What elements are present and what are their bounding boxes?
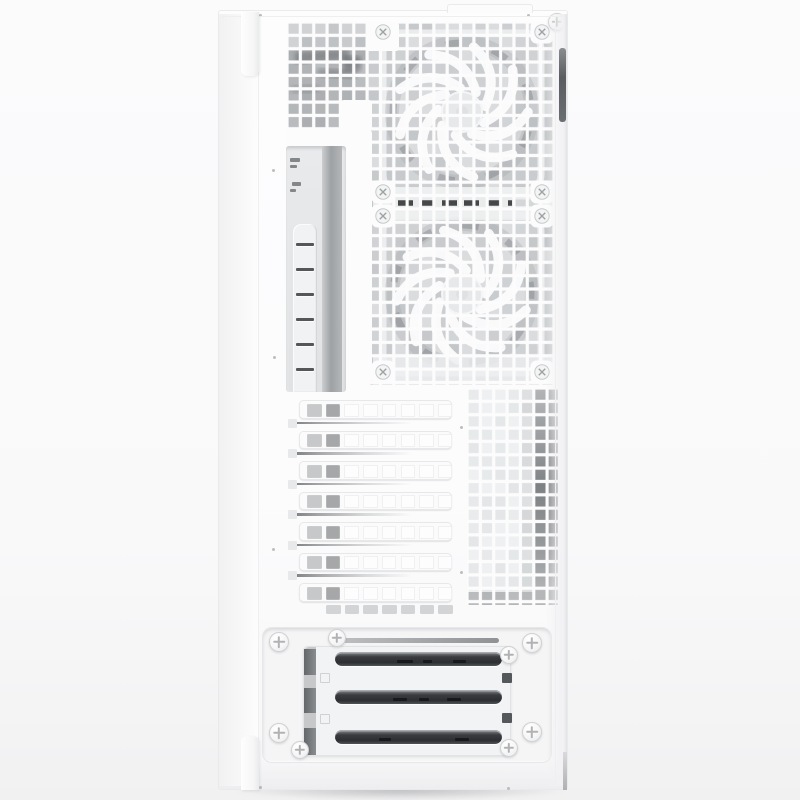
pci-cover-vent-hole [401,556,416,569]
pci-cover-vent-hole [382,587,397,600]
pci-cover-vent-hole [438,404,453,417]
pci-cover-vent-hole [307,556,322,569]
pci-cover-vent-hole [438,556,453,569]
pci-rail-tab [288,419,297,428]
pci-cover-vent-hole [419,526,434,539]
pci-cover-vent-hole [307,434,322,447]
thumbscrew [269,723,289,743]
io-bar-slot [296,243,314,246]
side-vent-svg [467,388,558,605]
rivet-dot [507,787,510,790]
pci-cover-vent-hole [382,434,397,447]
io-vertical-slot-bar [293,224,317,392]
pci-groove [294,544,452,547]
pci-bottom-vent [420,605,435,614]
pci-rail-tab [288,541,297,550]
pci-cover-vent-hole [419,587,434,600]
psu-top-rail-bar [343,638,499,643]
io-bar-slot [296,318,314,321]
pci-cover-vent-hole [307,404,322,417]
psu-slot-connector-mark [447,698,461,701]
thumbscrew [227,74,247,94]
pci-slot-cover [299,522,452,541]
pci-cover-vent-hole [419,465,434,478]
pci-cover-vent-hole [438,526,453,539]
pci-cover-vent-hole [363,434,378,447]
pci-cover-vent-hole [401,465,416,478]
pci-cover-vent-hole [344,404,359,417]
psu-slot-connector-mark [379,738,391,741]
rivet-dot [527,14,530,17]
psu-mount-slot [335,730,502,744]
psu-mount-slot [335,690,502,704]
psu-slot-connector-mark [423,660,432,663]
pci-groove [294,483,452,486]
psu-slot-connector-mark [419,698,429,701]
psu-square-embossing [320,714,330,724]
pci-cover-vent-hole [382,404,397,417]
psu-slot-connector-mark [393,698,407,701]
pci-cover-vent-hole [363,556,378,569]
pci-cover-vent-hole [344,556,359,569]
pci-cover-vent-hole [363,465,378,478]
psu-square-embossing [320,673,330,683]
thumbscrew [522,722,542,742]
io-cutout-opening [286,146,346,392]
pci-cover-vent-hole [419,495,434,508]
pci-cover-vent-hole [326,556,341,569]
pci-groove [294,513,452,516]
rivet-dot [460,571,463,574]
pci-slot-cover [299,583,452,602]
product-photo-pc-case-rear [0,0,800,800]
io-bar-slot [296,268,314,271]
pci-cover-vent-hole [401,587,416,600]
pci-cover-vent-hole [326,526,341,539]
pci-cover-vent-hole [344,587,359,600]
psu-slot-connector-mark [453,660,466,663]
pci-cover-vent-hole [382,465,397,478]
pci-slot-cover [299,400,452,419]
pci-slot-cover [299,492,452,511]
pci-cover-vent-hole [382,526,397,539]
pci-cover-vent-hole [326,495,341,508]
pci-cover-vent-hole [419,556,434,569]
io-connector-mark [290,189,296,192]
pci-cover-vent-hole [401,495,416,508]
pci-cover-vent-hole [326,465,341,478]
pci-slot-cover [299,553,452,572]
pci-cover-vent-hole [307,495,322,508]
thumbscrew [291,741,309,759]
pci-cover-vent-hole [307,465,322,478]
pci-cover-vent-hole [363,495,378,508]
pci-cover-vent-hole [401,404,416,417]
pci-slot-cover [299,431,452,450]
pci-cover-vent-hole [344,434,359,447]
rivet-dot [272,548,275,551]
pci-cover-vent-hole [438,495,453,508]
pci-slot-covers-area [288,394,460,618]
side-panel-pull-handle [559,48,566,122]
pci-cover-vent-hole [363,404,378,417]
pci-cover-vent-hole [326,404,341,417]
pci-groove [294,574,452,577]
pci-cover-vent-hole [419,434,434,447]
pci-cover-vent-hole [438,587,453,600]
pci-cover-vent-hole [326,587,341,600]
pci-cover-vent-hole [419,404,434,417]
thumbscrew [500,739,518,757]
pci-bottom-vent [382,605,397,614]
psu-square-cutout [502,713,512,723]
pci-cover-vent-hole [438,434,453,447]
pci-rail-tab [288,571,297,580]
pci-cover-vent-hole [382,556,397,569]
io-connector-mark [292,182,301,186]
rivet-dot [273,356,276,359]
pci-bottom-vent [401,605,416,614]
psu-mount-slot [335,652,502,666]
pci-rail-tab [288,480,297,489]
thumbscrew [500,646,518,664]
pci-bottom-vent [363,605,378,614]
pci-cover-vent-hole [363,587,378,600]
side-panel-latch-top [241,12,259,76]
pci-cover-vent-hole [363,526,378,539]
pci-cover-vent-hole [307,587,322,600]
pci-cover-vent-hole [344,526,359,539]
pci-bottom-vent [438,605,453,614]
pci-bottom-vent [326,605,341,614]
io-connector-mark [290,158,300,162]
thumbscrew [548,13,566,31]
thumbscrew [269,632,289,652]
pci-cover-vent-hole [344,495,359,508]
rivet-dot [272,169,275,172]
psu-left-column-segment [304,649,316,675]
pci-cover-vent-hole [326,434,341,447]
io-shield-strip [322,146,342,392]
psu-bracket-plate [303,646,511,756]
pci-slot-cover [299,461,452,480]
pci-cover-vent-hole [307,526,322,539]
pci-groove [294,422,452,425]
top-edge-tab [447,4,533,13]
pci-cover-vent-hole [382,495,397,508]
side-vent-grid [467,388,558,605]
pci-cover-vent-hole [401,526,416,539]
pci-rail-tab [288,449,297,458]
pci-rail-tab [288,510,297,519]
side-panel-latch-bottom [241,736,259,790]
pci-cover-vent-hole [401,434,416,447]
io-bar-slot [296,343,314,346]
pci-groove [294,452,452,455]
pci-cover-vent-hole [438,465,453,478]
psu-square-cutout [502,673,512,683]
io-bar-slot [296,368,314,371]
psu-slot-connector-mark [455,738,469,741]
io-connector-mark [290,165,297,168]
io-bar-slot [296,293,314,296]
thumbscrew [328,629,346,647]
psu-left-column-segment [304,688,316,713]
rivet-dot [460,426,463,429]
pci-cover-vent-hole [344,465,359,478]
thumbscrew [522,633,542,653]
pci-bottom-vent [345,605,360,614]
psu-slot-connector-mark [397,660,413,663]
